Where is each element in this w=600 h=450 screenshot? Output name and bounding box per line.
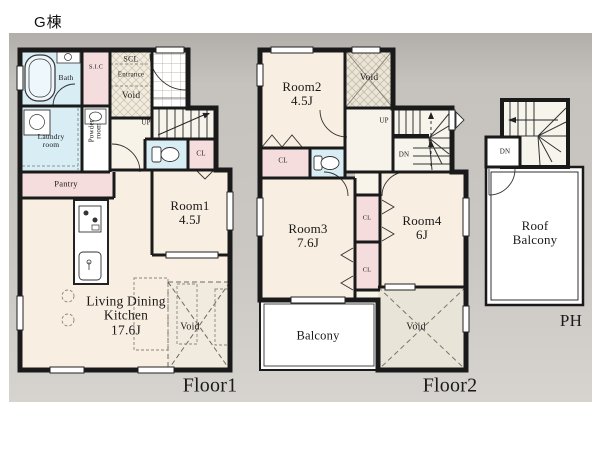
sink-icon <box>79 252 101 280</box>
toilet-icon-floor1 <box>152 147 179 162</box>
ph-dn-label: DN <box>500 148 511 155</box>
entrance-void-label: Void <box>122 91 141 101</box>
ldk-label: Living DiningKitchen17.6J <box>86 294 165 337</box>
laundry-room-label: Laundryroom <box>38 133 65 149</box>
floor2-cl-label: CL <box>278 157 287 164</box>
floor1-void-label: Void <box>180 323 200 334</box>
bathtub-icon <box>25 55 55 101</box>
room1-label: Room14.5J <box>170 199 209 227</box>
floor2-caption: Floor2 <box>423 375 478 396</box>
floor2-void-top-label: Void <box>360 73 379 83</box>
sic-label: S.I.C <box>89 65 103 72</box>
stairs-floor2 <box>393 108 452 172</box>
sic-room <box>82 50 110 106</box>
ph-caption: PH <box>560 312 582 330</box>
stairs-floor2-divider <box>393 134 429 139</box>
roof-balcony-label: RoofBalcony <box>513 219 558 247</box>
porch <box>152 50 188 108</box>
bath-counter-icon <box>57 51 80 63</box>
toilet-icon-floor2 <box>314 156 339 170</box>
room3-label: Room37.6J <box>288 222 327 250</box>
floor1-cl-label: CL <box>196 150 205 157</box>
entrance-label: Entrance <box>118 71 144 78</box>
floor2-dn-label: DN <box>399 151 410 158</box>
room2-label: Room24.5J <box>282 80 321 108</box>
scl-label: SCL <box>123 56 138 65</box>
floor2-void-bottom-label: Void <box>406 323 426 334</box>
room4-label: Room46J <box>402 214 441 242</box>
window-marker-triangle <box>456 112 464 128</box>
closet-b-label: CL <box>363 268 372 275</box>
stove-icon <box>79 206 101 232</box>
floorplan-page: G棟 Bath S.I.C SCL Entrance Void Laundryr… <box>0 0 600 450</box>
pantry-label: Pantry <box>54 179 77 188</box>
ph-plan <box>486 100 583 305</box>
closet-a-label: CL <box>363 216 372 223</box>
plan-title: G棟 <box>34 11 63 32</box>
balcony-label: Balcony <box>296 329 339 342</box>
floor1-up-label: UP <box>141 119 150 126</box>
floor1-caption: Floor1 <box>183 375 238 396</box>
bath-label: Bath <box>59 74 74 82</box>
powder-room-label: Powderroom <box>89 120 104 143</box>
floor2-up-label: UP <box>379 117 388 124</box>
